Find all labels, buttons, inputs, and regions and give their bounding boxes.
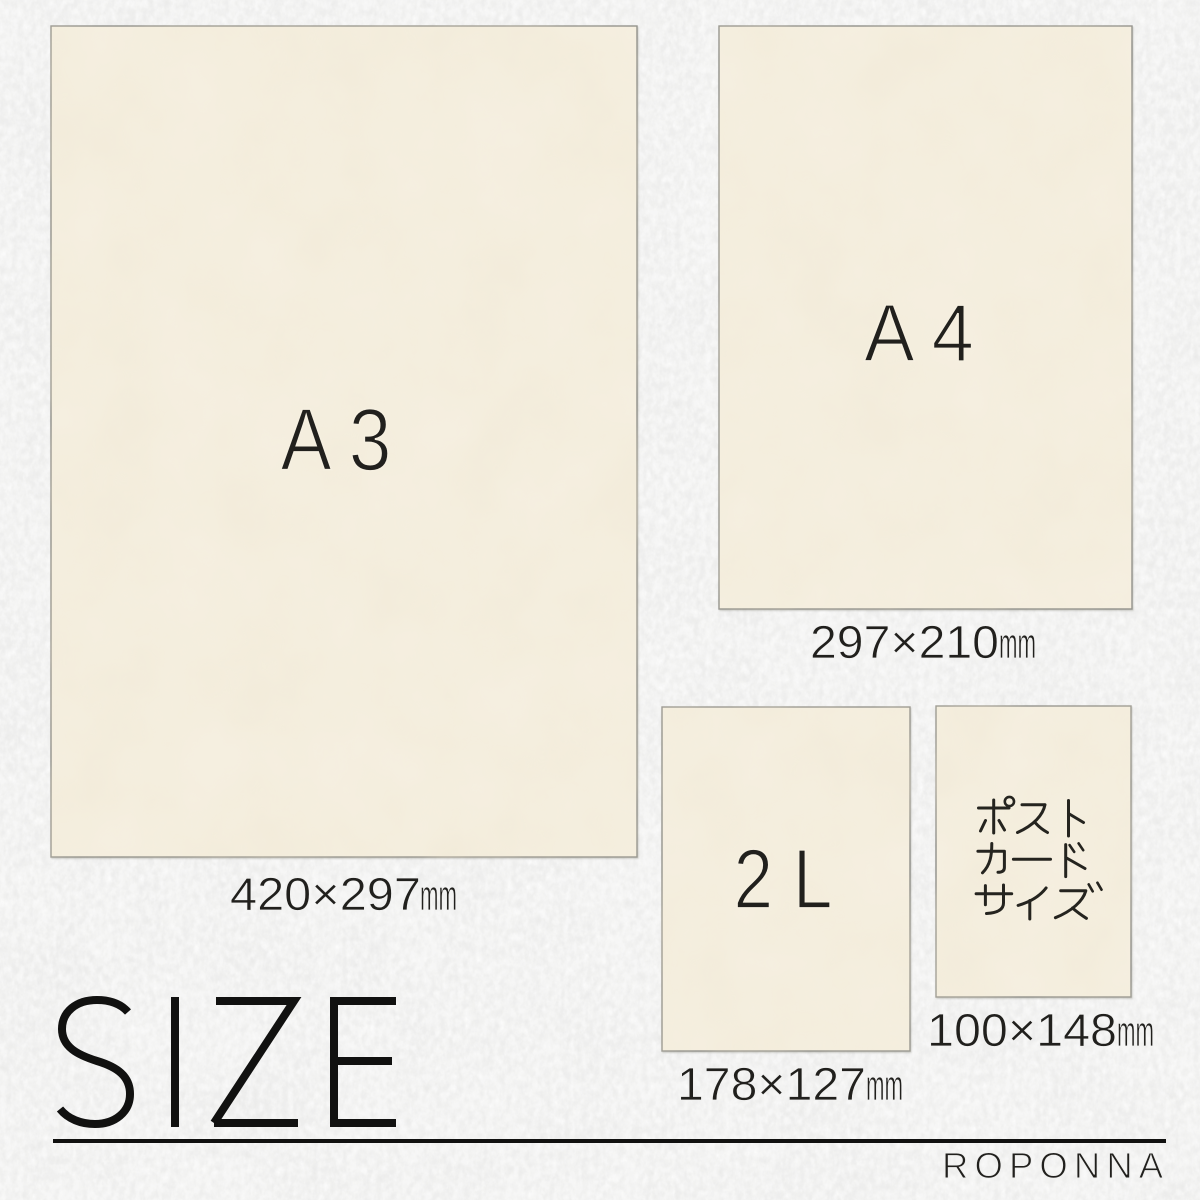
svg-text:A 4: A 4 xyxy=(864,288,974,379)
svg-text:A 3: A 3 xyxy=(281,390,392,489)
svg-text:297×210: 297×210 xyxy=(810,616,999,668)
svg-text:mm: mm xyxy=(999,620,1036,668)
svg-text:ROPONNA: ROPONNA xyxy=(942,1145,1169,1186)
svg-text:mm: mm xyxy=(420,872,457,920)
svg-text:mm: mm xyxy=(866,1062,903,1110)
svg-text:2 L: 2 L xyxy=(734,832,833,926)
svg-text:100×148: 100×148 xyxy=(927,1004,1117,1056)
svg-text:178×127: 178×127 xyxy=(677,1058,866,1110)
svg-text:mm: mm xyxy=(1117,1008,1154,1056)
svg-text:420×297: 420×297 xyxy=(230,868,421,920)
